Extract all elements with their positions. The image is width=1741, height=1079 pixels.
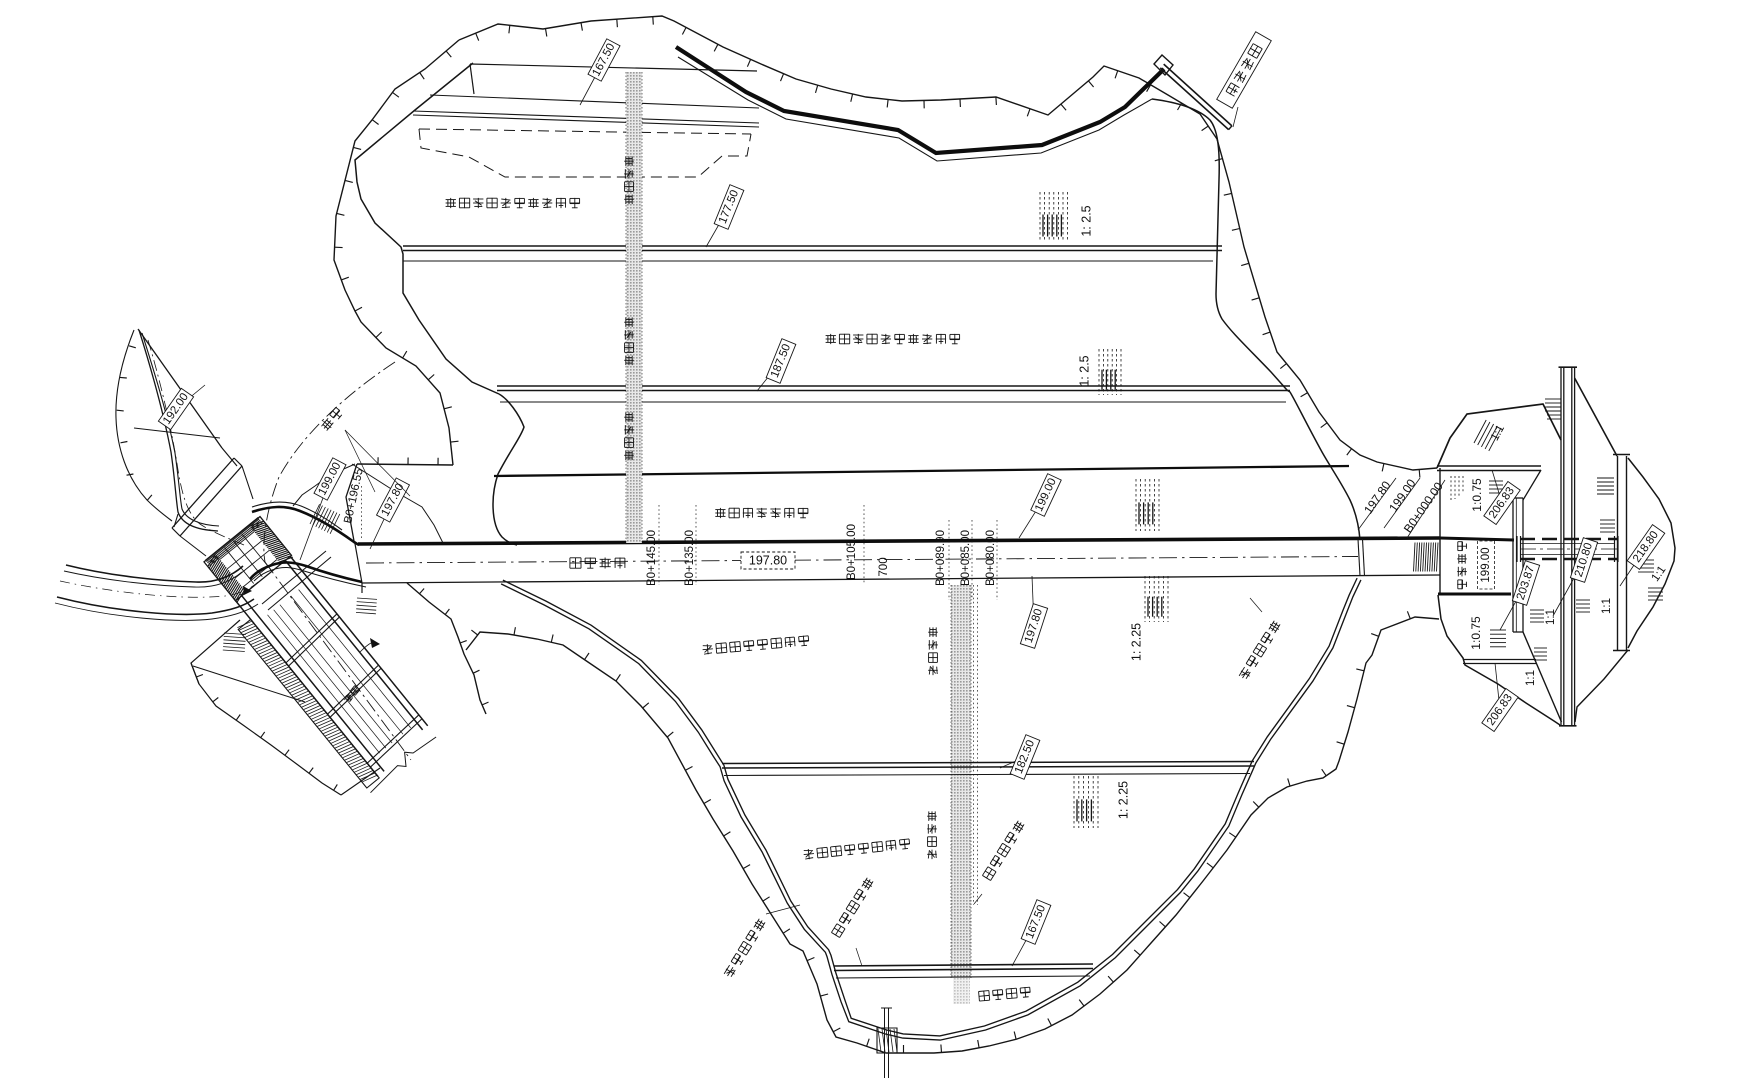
svg-text:1:0.75: 1:0.75 xyxy=(1470,478,1484,512)
svg-text:B0+085.00: B0+085.00 xyxy=(960,530,972,586)
svg-text:1: 2.5: 1: 2.5 xyxy=(1079,205,1093,236)
svg-text:B0+105.00: B0+105.00 xyxy=(846,524,858,580)
svg-text:1: 2.5: 1: 2.5 xyxy=(1077,355,1091,386)
svg-text:B0+145.00: B0+145.00 xyxy=(646,530,658,586)
svg-text:199.00: 199.00 xyxy=(1480,547,1492,582)
svg-text:B0+089.90: B0+089.90 xyxy=(935,530,947,586)
svg-text:1:0.75: 1:0.75 xyxy=(1469,616,1483,650)
svg-text:B0+080.00: B0+080.00 xyxy=(985,530,997,586)
svg-text:1: 2.25: 1: 2.25 xyxy=(1129,623,1143,661)
svg-text:1:1: 1:1 xyxy=(1601,598,1613,614)
svg-text:197.80: 197.80 xyxy=(749,553,787,567)
svg-text:700: 700 xyxy=(878,557,890,576)
svg-text:1:1: 1:1 xyxy=(1525,670,1537,686)
svg-text:1: 2.25: 1: 2.25 xyxy=(1116,781,1130,819)
svg-text:B0+135.00: B0+135.00 xyxy=(684,530,696,586)
